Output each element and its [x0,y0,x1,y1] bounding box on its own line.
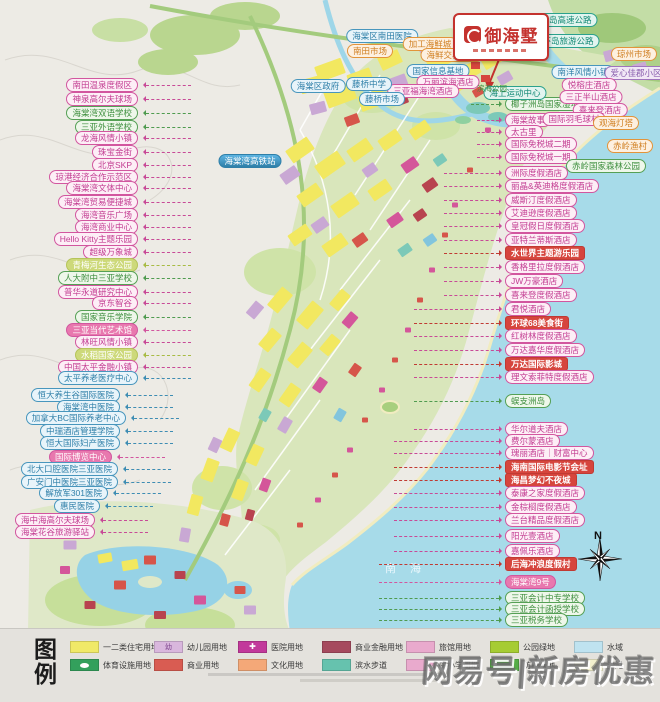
map-label: 珠宝金街 [92,145,138,159]
callout-connector [394,551,499,552]
callout-connector [146,152,191,153]
callout-connector [134,418,179,419]
callout-connector [146,303,191,304]
callout-connector [120,457,165,458]
callout-connector [414,429,499,430]
map-label: 解放军301医院 [39,486,108,500]
callout-connector [414,364,499,365]
legend-label: 医院用地 [271,642,303,653]
legend-swatch [322,641,351,653]
legend-item: 一二类住宅用地 [70,641,154,653]
map-label: 赤岭国家森林公园 [566,159,646,173]
callout-connector [414,350,499,351]
sports-oval-icon [80,663,89,668]
watermark: 网易号|新房优惠 [421,646,658,691]
disclaimer-text [208,673,438,676]
callout-connector [146,378,191,379]
callout-connector [146,367,191,368]
map-label: 京东智谷 [92,296,138,310]
map-label: 神泉高尔夫球场 [66,92,138,106]
callout-connector [444,173,499,174]
map-label: 国际免税城二期 [505,137,577,151]
callout-connector [146,177,191,178]
map-label: 海棠湾贸易便捷城 [58,195,138,209]
callout-connector [146,215,191,216]
callout-connector [444,295,499,296]
project-logo: 御海墅 [453,13,549,61]
callout-connector [414,309,499,310]
callout-connector [146,202,191,203]
callout-connector [146,355,191,356]
legend-item: 幼幼儿园用地 [154,641,238,653]
callout-connector [477,120,499,121]
map-label: 丽晶&英迪格度假酒店 [505,179,599,193]
map-label: Hello Kitty主题乐园 [54,232,138,246]
legend-swatch [322,659,351,671]
callout-connector [477,157,499,158]
callout-connector [146,113,191,114]
legend-label: 商业用地 [187,660,219,671]
map-label: 海南国际电影节会址 [505,460,594,474]
callout-connector [444,213,499,214]
map-label: 水世界主题游乐园 [505,246,585,260]
map-label: 藤桥市场 [359,92,405,106]
map-label: 赤岭渔村 [607,139,653,153]
map-label: JW万豪酒店 [505,274,563,288]
callout-connector [414,323,499,324]
map-label: 南田市场 [347,44,393,58]
map-label: 藤桥中学 [346,77,392,91]
callout-connector [146,227,191,228]
map-label: 皇冠假日度假酒店 [505,219,585,233]
map-label: 三亚税务学校 [505,613,568,627]
callout-connector [146,127,191,128]
map-label: 青梅河生态公园 [66,258,138,272]
legend-title: 图例 [34,637,60,688]
map-label: 琼州市场 [611,47,657,61]
callout-connector [394,536,499,537]
callout-connector [146,265,191,266]
map-label: 加拿大BC国际养老中心 [26,411,126,425]
callout-connector [394,467,499,468]
callout-connector [146,99,191,100]
map-label: 国家音乐学院 [75,310,138,324]
map-callout-layer: 南田温泉度假区神泉高尔夫球场海棠湾双语学校三亚外语学校龙海风情小镇珠宝金街北京S… [0,0,660,702]
map-page: 南田温泉度假区神泉高尔夫球场海棠湾双语学校三亚外语学校龙海风情小镇珠宝金街北京S… [0,0,660,702]
map-label: 瑰丽酒店｜财富中心 [505,446,594,460]
callout-connector [444,267,499,268]
legend-swatch [70,659,99,671]
map-label: 海棠湾双语学校 [66,106,138,120]
callout-connector [146,342,191,343]
map-label: 威斯汀度假酒店 [505,193,577,207]
callout-connector [414,377,499,378]
legend-swatch [70,641,99,653]
callout-connector [444,226,499,227]
callout-connector [103,520,148,521]
map-label: 龙海风情小镇 [75,131,138,145]
map-label: 嘉佩乐酒店 [505,544,560,558]
callout-connector [146,188,191,189]
map-label: 三正半山酒店 [559,90,622,104]
map-label: 兰台精品度假酒店 [505,513,585,527]
callout-connector [146,317,191,318]
map-label: 蜈支洲岛 [505,394,551,408]
callout-connector [444,281,499,282]
map-label: 恒大国际妇产医院 [40,436,120,450]
map-label: 人大附中三亚学校 [58,271,138,285]
map-label: 金棕榈度假酒店 [505,500,577,514]
callout-connector [477,144,499,145]
callout-connector [444,200,499,201]
map-label: 滨海公园 [477,84,507,94]
callout-connector [128,443,173,444]
callout-connector [116,493,161,494]
map-label: 海棠花谷旅游驿站 [15,525,95,539]
map-label: 后海冲浪度假村 [505,557,577,571]
callout-connector [146,278,191,279]
sea-name-label: 南海 [385,560,435,576]
map-label: 海棠区政府 [291,79,346,93]
legend-label: 商业金融用地 [355,642,403,653]
logo-slogan [473,49,529,52]
callout-connector [146,85,191,86]
map-label: 艾迪逊度假酒店 [505,206,577,220]
map-label: 海棠湾高铁站 [218,154,281,168]
map-label: 万达国际影城 [505,357,568,371]
legend-label: 幼儿园用地 [187,642,227,653]
legend-swatch: ✚ [238,641,267,653]
callout-connector [394,520,499,521]
map-label: 太平养老医疗中心 [58,371,138,385]
map-label: 超级万象城 [83,245,138,259]
callout-connector [108,506,153,507]
compass-rose: N [578,532,622,591]
callout-connector [471,104,499,105]
legend-swatch [238,659,267,671]
logo-seal-icon [464,26,481,43]
map-label: 洲际度假酒店 [505,166,568,180]
map-label: 海昌梦幻不夜城 [505,473,577,487]
callout-connector [146,292,191,293]
map-label: 理文索菲特度假酒店 [505,370,594,384]
map-label: 海棠湾9号 [505,575,556,589]
logo-title: 御海墅 [485,22,539,47]
callout-connector [126,469,171,470]
map-label: 君悦酒店 [505,302,551,316]
map-label: 亚特兰蒂斯酒店 [505,233,577,247]
map-label: 惠民医院 [54,499,100,513]
map-label: 万达嘉华度假酒店 [505,343,585,357]
callout-connector [414,401,499,402]
callout-connector [126,482,171,483]
map-label: 阳光壹酒店 [505,529,560,543]
callout-connector [146,138,191,139]
map-label: 林旺风情小镇 [75,335,138,349]
callout-connector [444,253,499,254]
callout-connector [128,395,173,396]
map-label: 香格里拉度假酒店 [505,260,585,274]
callout-connector [394,453,499,454]
callout-connector [128,407,173,408]
map-label: 红树林度假酒店 [505,329,577,343]
legend-label: 文化用地 [271,660,303,671]
callout-connector [379,609,499,610]
legend-label: 一二类住宅用地 [103,642,159,653]
legend-item: 文化用地 [238,659,322,671]
map-label: 南田温泉度假区 [66,78,138,92]
legend-item: ✚医院用地 [238,641,322,653]
callout-connector [146,252,191,253]
map-label: 海棠湾文体中心 [66,181,138,195]
map-label: 环球68美食街 [505,316,569,330]
callout-connector [444,186,499,187]
legend-swatch [154,659,183,671]
callout-connector [146,165,191,166]
callout-connector [394,493,499,494]
callout-connector [379,620,499,621]
map-label: 北大口腔医院三亚医院 [21,462,118,476]
callout-connector [394,441,499,442]
callout-connector [128,431,173,432]
callout-connector [379,564,499,565]
callout-connector [103,532,148,533]
callout-connector [444,240,499,241]
callout-connector [477,132,499,133]
callout-connector [414,336,499,337]
callout-connector [379,582,499,583]
map-label: 观海灯塔 [593,116,639,130]
legend-item: 商业金融用地 [322,641,406,653]
legend-label: 体育设施用地 [103,660,151,671]
callout-connector [146,330,191,331]
compass-north-label: N [594,530,602,542]
legend-item: 体育设施用地 [70,659,154,671]
callout-connector [146,239,191,240]
callout-connector [394,507,499,508]
legend-swatch: 幼 [154,641,183,653]
medical-cross-icon: ✚ [249,643,256,651]
swatch-text: 幼 [165,644,172,651]
callout-connector [379,598,499,599]
legend-item: 商业用地 [154,659,238,671]
legend-label: 滨水步道 [355,660,387,671]
callout-connector [394,480,499,481]
map-label: 泰康之家度假酒店 [505,486,585,500]
legend-item: 滨水步道 [322,659,406,671]
map-label: 喜来登度假酒店 [505,288,577,302]
